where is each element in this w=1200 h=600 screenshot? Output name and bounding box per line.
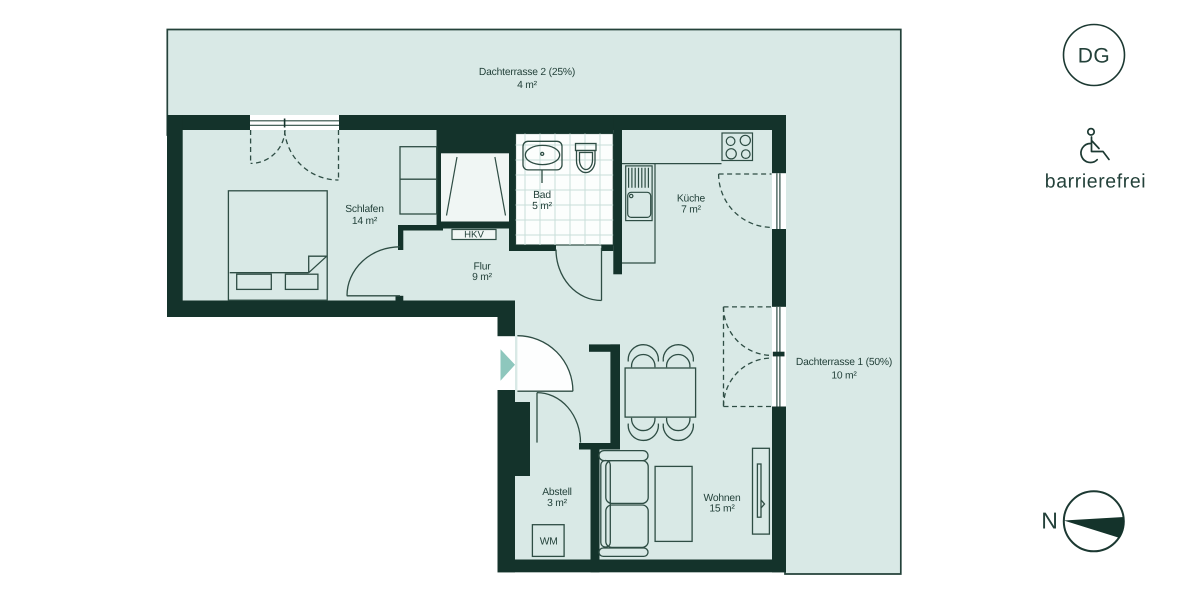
svg-text:14 m²: 14 m²: [352, 216, 378, 227]
svg-text:DG: DG: [1078, 44, 1111, 67]
svg-text:7 m²: 7 m²: [681, 204, 702, 215]
svg-text:Flur: Flur: [474, 262, 492, 273]
svg-text:Küche: Küche: [677, 194, 706, 205]
svg-text:barrierefrei: barrierefrei: [1045, 171, 1146, 193]
svg-text:Dachterrasse 1 (50%): Dachterrasse 1 (50%): [796, 357, 892, 368]
svg-text:5 m²: 5 m²: [532, 201, 553, 212]
svg-text:WM: WM: [540, 537, 558, 548]
svg-text:Bad: Bad: [533, 190, 551, 201]
svg-text:4 m²: 4 m²: [517, 80, 538, 91]
svg-text:3 m²: 3 m²: [547, 498, 568, 509]
svg-text:N: N: [1041, 508, 1058, 534]
svg-text:Schlafen: Schlafen: [345, 204, 384, 215]
svg-text:15 m²: 15 m²: [709, 504, 735, 515]
svg-text:Wohnen: Wohnen: [704, 493, 741, 504]
svg-text:Dachterrasse 2 (25%): Dachterrasse 2 (25%): [479, 67, 575, 78]
svg-text:HKV: HKV: [464, 229, 484, 240]
svg-text:Abstell: Abstell: [542, 487, 572, 498]
svg-text:9 m²: 9 m²: [472, 272, 493, 283]
svg-text:10 m²: 10 m²: [831, 370, 857, 381]
